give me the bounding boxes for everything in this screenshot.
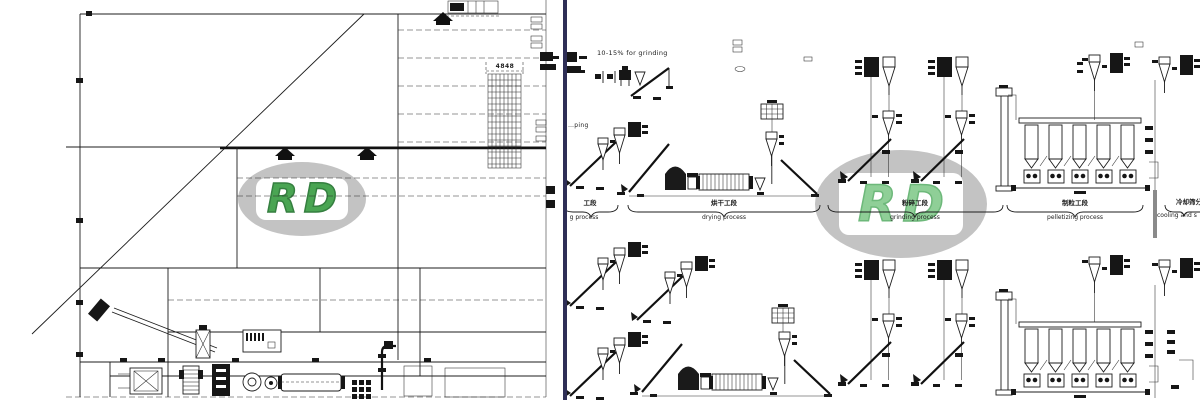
pipe-elbow: [378, 341, 396, 390]
receiving-cluster: [631, 256, 715, 324]
section-label-en: g process: [554, 214, 614, 221]
hatched-panel-area: [486, 62, 524, 168]
control-combs-box: [243, 330, 281, 352]
elevator-discharge-pipe: [1008, 95, 1016, 120]
grinding-cyclone-pair: [911, 57, 975, 184]
pellet-bin-battery: [1011, 322, 1158, 398]
aspiration-cyclone: [1082, 255, 1130, 322]
edge-symbols: [531, 17, 559, 208]
screen-box: [772, 304, 794, 323]
plan-equipment-row: [88, 298, 505, 399]
drying-drum-line: [617, 132, 819, 197]
grinding-cyclone-pair: [838, 260, 902, 387]
interior-walls: [66, 14, 546, 397]
valve-manifold: [352, 380, 371, 399]
far-right-cyclone: [1152, 258, 1200, 398]
screener-x-box: [118, 368, 162, 394]
receiving-cluster: [567, 242, 648, 310]
receiving-cluster: [567, 122, 648, 190]
floorplan-drawing-panel: R D: [0, 0, 563, 400]
drying-drum-line: [630, 332, 832, 397]
elevator-tower: [196, 325, 210, 358]
equipment-box: [445, 368, 505, 397]
flow-row-2: [567, 242, 1200, 400]
bucket-elevator: [996, 85, 1012, 191]
hatch-dimension-label: 4848: [486, 63, 524, 70]
bucket-elevator: [996, 289, 1012, 395]
grinding-bypass-miniflow: [595, 66, 673, 100]
section-label-en: drying process: [674, 214, 774, 221]
floorplan-linework: [0, 0, 563, 400]
cut-cluster: [567, 52, 587, 73]
grinding-cyclone-pair: [838, 57, 902, 184]
flow-row-1: [567, 40, 1200, 238]
grinding-cyclone-pair: [911, 260, 975, 387]
section-label-cn: 粉碎工段: [865, 197, 965, 207]
section-label-cn: 烘干工段: [674, 197, 774, 207]
far-right-cyclone: [1152, 55, 1200, 238]
mill-machine: [212, 364, 230, 396]
pellet-bin-battery: [1011, 118, 1158, 194]
roller-feeder: [179, 366, 203, 394]
dryer-cylinder-plan: [278, 374, 345, 391]
elevator-discharge-pipe: [1008, 299, 1016, 324]
section-label-cn: 工段: [560, 197, 620, 207]
equipment-box: [404, 366, 432, 396]
building-outline: [32, 0, 546, 397]
flow-diagram-panel: R D: [567, 0, 1200, 400]
aspiration-cyclone: [1077, 53, 1130, 120]
section-label-en: grinding process: [865, 214, 965, 221]
section-label-en: pelletizing process: [1025, 214, 1125, 221]
cad-drawings-screenshot: { "colors": { "divider_navy": "#2e2e56",…: [0, 0, 1200, 400]
section-label-cn: 冷却筛分: [1159, 196, 1200, 206]
screen-box: [761, 100, 783, 119]
section-label-en: cooling and s: [1157, 212, 1200, 219]
grinding-share-annotation: 10-15% for grinding: [597, 49, 687, 57]
section-label-cn: 制粒工段: [1025, 197, 1125, 207]
edge-label-fragment: …ping: [568, 122, 602, 129]
